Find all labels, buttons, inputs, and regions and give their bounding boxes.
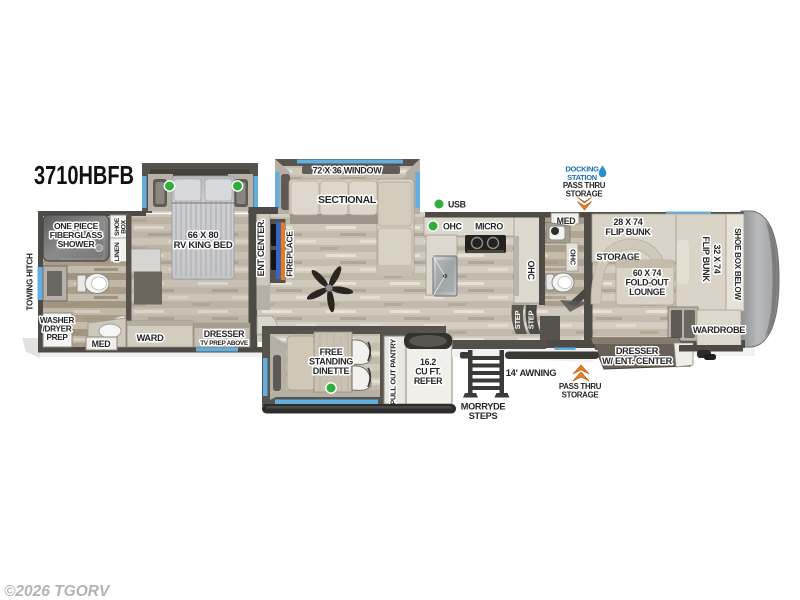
svg-text:©2026 TGORV: ©2026 TGORV <box>4 583 111 600</box>
svg-text:STORAGE: STORAGE <box>562 391 599 400</box>
svg-text:STEP: STEP <box>527 311 536 330</box>
svg-text:FLIP BUNK: FLIP BUNK <box>605 227 651 237</box>
svg-text:FIREPLACE: FIREPLACE <box>285 231 295 277</box>
svg-text:OHC: OHC <box>526 260 536 280</box>
svg-text:LOUNGE: LOUNGE <box>629 287 665 297</box>
svg-text:OHC: OHC <box>569 249 578 266</box>
svg-text:DRESSER: DRESSER <box>204 329 245 339</box>
svg-text:WARDROBE: WARDROBE <box>693 325 745 335</box>
svg-text:FOLD-OUT: FOLD-OUT <box>625 278 669 288</box>
svg-text:STANDING: STANDING <box>309 357 353 367</box>
svg-text:3710HBFB: 3710HBFB <box>34 160 134 190</box>
svg-text:SECTIONAL: SECTIONAL <box>318 194 377 206</box>
svg-text:TOWING HITCH: TOWING HITCH <box>26 253 35 311</box>
svg-text:DINETTE: DINETTE <box>313 366 350 376</box>
svg-text:60 X 74: 60 X 74 <box>633 268 662 278</box>
svg-text:REFER: REFER <box>414 376 443 386</box>
svg-text:CU FT.: CU FT. <box>415 367 441 377</box>
svg-text:FLIP BUNK: FLIP BUNK <box>701 236 711 282</box>
svg-text:MORRYDE: MORRYDE <box>461 402 506 412</box>
svg-text:STORAGE: STORAGE <box>566 190 603 199</box>
svg-text:PULL OUT PANTRY: PULL OUT PANTRY <box>389 339 398 405</box>
svg-text:ENT CENTER.: ENT CENTER. <box>256 220 266 277</box>
svg-text:72 X 36 WINDOW: 72 X 36 WINDOW <box>313 166 383 176</box>
svg-text:DRESSER: DRESSER <box>616 346 659 356</box>
svg-text:USB: USB <box>448 200 466 210</box>
svg-text:FREE: FREE <box>320 347 343 357</box>
svg-text:SHOWER: SHOWER <box>58 239 96 249</box>
svg-text:MICRO: MICRO <box>475 222 503 232</box>
svg-text:TV PREP ABOVE: TV PREP ABOVE <box>200 340 249 347</box>
svg-text:PREP: PREP <box>46 333 68 342</box>
svg-text:LINEN: LINEN <box>114 242 121 261</box>
svg-text:MED: MED <box>92 339 111 349</box>
svg-text:14' AWNING: 14' AWNING <box>506 367 556 378</box>
svg-text:WARD: WARD <box>137 333 165 343</box>
svg-text:16.2: 16.2 <box>420 357 436 367</box>
svg-text:STEPS: STEPS <box>469 411 498 421</box>
svg-text:SHOE BOX BELOW: SHOE BOX BELOW <box>733 228 742 300</box>
svg-text:RV KING BED: RV KING BED <box>174 240 233 251</box>
svg-text:28 X 74: 28 X 74 <box>614 217 643 227</box>
svg-text:OHC: OHC <box>443 222 463 232</box>
svg-text:W/ ENT. CENTER: W/ ENT. CENTER <box>602 356 672 366</box>
svg-text:STEP: STEP <box>513 311 522 330</box>
svg-text:32 X 74: 32 X 74 <box>712 245 722 274</box>
